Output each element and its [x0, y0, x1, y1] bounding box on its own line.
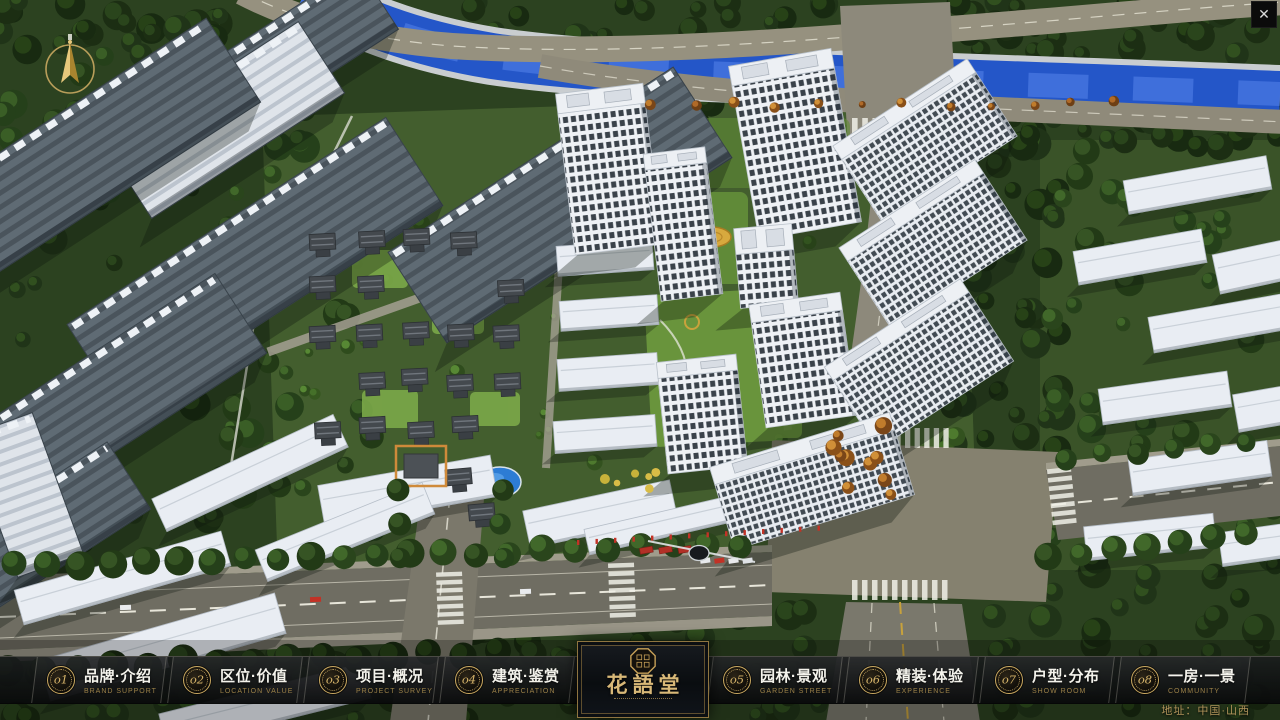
project-logo-title: 花語堂 — [602, 674, 685, 696]
nav-item-label-zh: 精装·体验 — [896, 665, 964, 686]
nav-item-2[interactable]: o2 区位·价值 LOCATION VALUE — [167, 657, 303, 703]
nav-group-left: o1 品牌·介绍 BRAND SUPPORT o2 区位·价值 LOCATION… — [34, 657, 572, 703]
nav-item-1[interactable]: o1 品牌·介绍 BRAND SUPPORT — [31, 657, 167, 703]
nav-item-label-en: APPRECIATION — [492, 688, 560, 695]
nav-item-label-zh: 品牌·介绍 — [84, 665, 157, 686]
nav-item-label-zh: 建筑·鉴赏 — [492, 665, 560, 686]
nav-item-number-badge: o8 — [1131, 666, 1159, 694]
nav-item-label-zh: 项目·概况 — [356, 665, 433, 686]
nav-item-number-badge: o5 — [723, 666, 751, 694]
nav-item-label-en: COMMUNITY — [1168, 688, 1236, 695]
logo-tagline-rule — [614, 698, 672, 702]
nav-item-label-zh: 园林·景观 — [760, 665, 832, 686]
nav-item-8[interactable]: o8 一房·一景 COMMUNITY — [1115, 657, 1251, 703]
aerial-render-viewport[interactable] — [0, 0, 1280, 720]
nav-item-number-badge: o4 — [455, 666, 483, 694]
nav-item-number-badge: o2 — [183, 666, 211, 694]
nav-group-right: o5 园林·景观 GARDEN STREET o6 精装·体验 EXPERIEN… — [710, 657, 1248, 703]
nav-item-label-zh: 区位·价值 — [220, 665, 293, 686]
presentation-window: ✕ o1 品牌·介绍 BRAND SUPPORT o2 区位·价值 LOCATI… — [0, 0, 1280, 720]
project-logo-panel: 花語堂 — [577, 641, 709, 718]
nav-item-label-en: LOCATION VALUE — [220, 688, 293, 695]
nav-item-label-en: PROJECT SURVEY — [356, 688, 433, 695]
nav-item-number-badge: o6 — [859, 666, 887, 694]
nav-item-number-badge: o3 — [319, 666, 347, 694]
nav-item-label-en: SHOW ROOM — [1032, 688, 1100, 695]
nav-item-number-badge: o1 — [47, 666, 75, 694]
nav-item-3[interactable]: o3 项目·概况 PROJECT SURVEY — [303, 657, 439, 703]
nav-item-number-badge: o7 — [995, 666, 1023, 694]
nav-item-7[interactable]: o7 户型·分布 SHOW ROOM — [979, 657, 1115, 703]
nav-item-label-en: GARDEN STREET — [760, 688, 832, 695]
nav-item-5[interactable]: o5 园林·景观 GARDEN STREET — [707, 657, 843, 703]
address-text: 地址：中国·山西 — [1161, 702, 1250, 718]
nav-item-label-en: EXPERIENCE — [896, 688, 964, 695]
nav-item-label-en: BRAND SUPPORT — [84, 688, 157, 695]
nav-item-label-zh: 一房·一景 — [1168, 665, 1236, 686]
nav-item-6[interactable]: o6 精装·体验 EXPERIENCE — [843, 657, 979, 703]
nav-item-label-zh: 户型·分布 — [1032, 665, 1100, 686]
site-plan-render — [0, 0, 1280, 720]
nav-item-4[interactable]: o4 建筑·鉴赏 APPRECIATION — [439, 657, 575, 703]
octagon-seal-icon — [630, 648, 656, 674]
close-button[interactable]: ✕ — [1251, 1, 1277, 28]
